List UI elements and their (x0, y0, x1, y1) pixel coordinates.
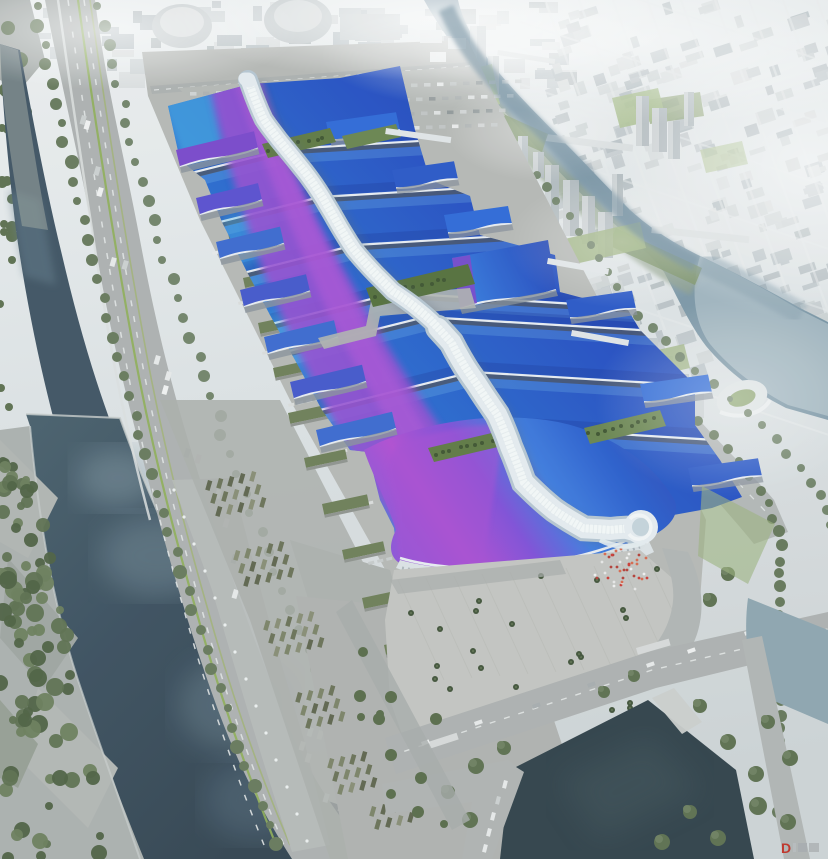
svg-text:D: D (781, 840, 791, 856)
